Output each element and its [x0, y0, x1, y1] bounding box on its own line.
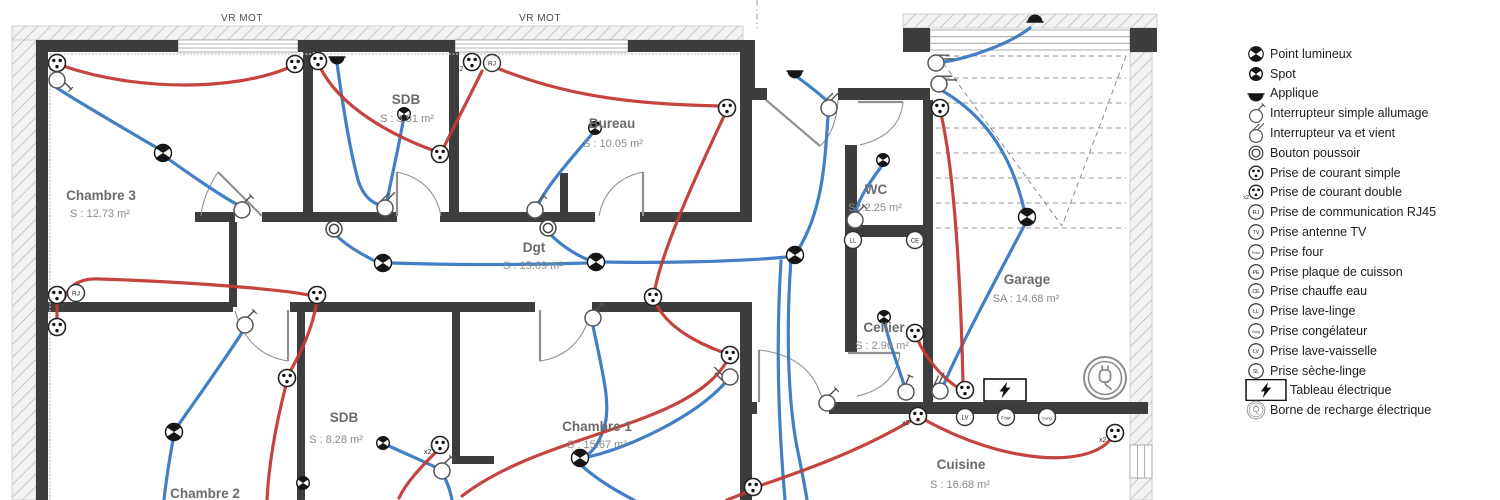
- wall: [838, 88, 930, 100]
- door-swing-arc: [397, 172, 441, 216]
- legend-item-label: Prise de courant double: [1270, 185, 1402, 199]
- int-simple-symbol: [893, 373, 920, 402]
- labels-layer: Chambre 3S : 12.73 m²SDBS : 3.91 m²Burea…: [66, 13, 1060, 500]
- legend-item-lv: LVPrise lave-vaisselle: [1243, 341, 1493, 361]
- svg-text:SL: SL: [1253, 369, 1259, 375]
- pe-icon: PE: [1243, 262, 1269, 282]
- room-area-label: S : 10.05 m²: [583, 138, 643, 150]
- prise-symbol: [932, 100, 949, 117]
- legend-item-applique: Applique: [1243, 84, 1493, 104]
- window-motor-label: VR MOT: [221, 13, 263, 24]
- window: [930, 30, 1130, 50]
- svg-text:TV: TV: [1252, 230, 1259, 236]
- wall: [740, 52, 752, 222]
- prise-x2-symbol: x2: [456, 54, 481, 74]
- blue-wire: [604, 257, 787, 262]
- spot-symbol: [377, 437, 390, 450]
- applique-symbol: [329, 57, 346, 65]
- legend-item-ce: CEPrise chauffe eau: [1243, 282, 1493, 302]
- door-swing-arc: [201, 172, 218, 216]
- wall: [740, 302, 752, 500]
- blue-wire: [778, 261, 785, 500]
- spot-symbol: [877, 154, 890, 167]
- room-label: Garage: [1004, 272, 1051, 287]
- wall: [829, 402, 1148, 414]
- lv-icon: LV: [1243, 341, 1269, 361]
- red-wire: [64, 279, 309, 299]
- prise-icon: [1243, 163, 1269, 183]
- legend-item-label: Prise lave-linge: [1270, 304, 1355, 318]
- svg-text:Cong: Cong: [1252, 330, 1260, 334]
- point-lumineux-symbol: [572, 450, 589, 467]
- exterior-hatch-band: [12, 28, 36, 500]
- bouton-symbol: [326, 221, 342, 237]
- room-label: SDB: [392, 92, 421, 107]
- wall: [903, 28, 930, 52]
- legend-item-point-lumineux: Point lumineux: [1243, 44, 1493, 64]
- tableau-icon: [1243, 379, 1289, 401]
- wall: [592, 302, 740, 312]
- legend-item-label: Prise de courant simple: [1270, 166, 1401, 180]
- room-label: Chambre 2: [170, 486, 240, 500]
- room-area-label: S : 12.73 m²: [70, 208, 130, 220]
- legend-item-label: Prise sèche-linge: [1270, 364, 1366, 378]
- prise-symbol: [49, 287, 66, 304]
- window: [455, 40, 628, 52]
- room-area-label: S : 15.69 m²: [503, 260, 563, 272]
- borne-icon: [1243, 400, 1269, 420]
- room-label: Chambre 3: [66, 188, 136, 203]
- red-wire: [320, 67, 432, 150]
- svg-text:x2: x2: [424, 449, 432, 456]
- sl-icon: SL: [1243, 361, 1269, 381]
- room-label: Dgt: [523, 240, 546, 255]
- prise-symbol: [719, 100, 736, 117]
- legend-item-label: Spot: [1270, 67, 1296, 81]
- svg-text:x2: x2: [1099, 437, 1107, 444]
- legend-item-label: Interrupteur va et vient: [1270, 126, 1395, 140]
- door-swing-arc: [540, 311, 591, 361]
- legend-item-label: Point lumineux: [1270, 47, 1352, 61]
- red-wire: [941, 114, 963, 382]
- blue-wire: [57, 88, 159, 149]
- lv-symbol: LV: [957, 409, 974, 426]
- int-simple-symbol: [237, 309, 257, 333]
- applique-symbol: [787, 71, 804, 79]
- rj45-symbol: RJ: [484, 55, 501, 72]
- int-simple-symbol: [434, 455, 454, 479]
- ce-symbol: CE: [907, 232, 924, 249]
- ll-icon: LL: [1243, 301, 1269, 321]
- point-lumineux-symbol: [787, 247, 804, 264]
- blue-wire: [551, 235, 589, 260]
- stair-diagonal-line: [938, 56, 1062, 226]
- prise-symbol: [287, 56, 304, 73]
- door-swing-arc: [860, 102, 903, 145]
- room-label: SDB: [330, 410, 359, 425]
- electrical-floor-plan-screenshot: x2RJLLCEx2LVFourCongx2RJx2 Chambre 3S : …: [0, 0, 1500, 500]
- spot-icon: [1243, 64, 1269, 84]
- wall: [628, 40, 755, 52]
- prise-symbol: [907, 325, 924, 342]
- legend-item-prise-x2: x2Prise de courant double: [1243, 183, 1493, 203]
- prise-symbol: [309, 287, 326, 304]
- blue-wire: [337, 63, 380, 205]
- legend-item-sl: SLPrise sèche-linge: [1243, 361, 1493, 381]
- rj45-icon: RJ: [1243, 202, 1269, 222]
- ce-icon: CE: [1243, 281, 1269, 301]
- wall: [303, 52, 313, 218]
- prise-symbol: [49, 319, 66, 336]
- prise-symbol: [957, 382, 974, 399]
- window-motor-label: VR MOT: [519, 13, 561, 24]
- legend-item-tv: TVPrise antenne TV: [1243, 222, 1493, 242]
- room-area-label: S : 3.91 m²: [380, 113, 434, 125]
- point-lumineux-symbol: [166, 424, 183, 441]
- exterior-hatch-band: [12, 26, 743, 40]
- blue-wire: [177, 331, 243, 427]
- int-vv-symbol: [377, 192, 395, 216]
- ll-symbol: LL: [845, 232, 862, 249]
- legend-item-int-vv: Interrupteur va et vient: [1243, 123, 1493, 143]
- room-area-label: SA : 14.68 m²: [993, 293, 1060, 305]
- legend-item-label: Tableau électrique: [1290, 383, 1391, 397]
- svg-text:LV: LV: [1253, 349, 1259, 355]
- int-vv-symbol: [714, 367, 738, 385]
- svg-text:RJ: RJ: [488, 60, 496, 67]
- svg-text:x2: x2: [1243, 196, 1249, 202]
- wall: [297, 307, 305, 500]
- svg-text:Cong: Cong: [1042, 415, 1052, 420]
- legend-item-label: Interrupteur simple allumage: [1270, 106, 1428, 120]
- tableau-symbol: [984, 379, 1026, 401]
- four-icon: Four: [1243, 242, 1269, 262]
- legend-item-label: Prise congélateur: [1270, 324, 1367, 338]
- wall: [36, 40, 48, 500]
- legend-item-rj45: RJPrise de communication RJ45: [1243, 202, 1493, 222]
- room-area-label: S : 2.25 m²: [848, 202, 902, 214]
- legend-item-label: Bouton poussoir: [1270, 146, 1360, 160]
- blue-wire: [796, 76, 826, 100]
- room-label: Cellier: [863, 320, 905, 335]
- wall: [845, 237, 857, 352]
- door-leaf: [766, 100, 820, 146]
- room-label: Chambre 1: [562, 419, 632, 434]
- legend-item-prise: Prise de courant simple: [1243, 163, 1493, 183]
- point-lumineux-symbol: [588, 254, 605, 271]
- wall: [1130, 28, 1157, 52]
- cong-icon: Cong: [1243, 321, 1269, 341]
- prise-symbol: [645, 289, 662, 306]
- borne-symbol: [1084, 357, 1126, 399]
- legend-item-cong: CongPrise congélateur: [1243, 321, 1493, 341]
- svg-text:LV: LV: [962, 415, 969, 421]
- legend-item-label: Borne de recharge électrique: [1270, 403, 1431, 417]
- room-area-label: S : 8.28 m²: [309, 434, 363, 446]
- legend-panel: Point lumineuxSpotAppliqueInterrupteur s…: [1243, 44, 1493, 420]
- int-vv-icon: [1243, 123, 1269, 143]
- blue-wire: [337, 236, 375, 261]
- legend-item-borne: Borne de recharge électrique: [1243, 400, 1493, 420]
- prise-symbol: [745, 479, 762, 496]
- legend-item-label: Prise plaque de cuisson: [1270, 265, 1403, 279]
- prise-x2-symbol: x2: [1099, 425, 1124, 445]
- blue-wire: [582, 466, 634, 500]
- legend-item-label: Prise de communication RJ45: [1270, 205, 1436, 219]
- svg-text:LL: LL: [850, 238, 857, 244]
- prise-x2-icon: x2: [1243, 182, 1269, 202]
- legend-item-ll: LLPrise lave-linge: [1243, 301, 1493, 321]
- blue-wire: [798, 116, 828, 250]
- point-lumineux-icon: [1243, 44, 1269, 64]
- applique-icon: [1243, 84, 1269, 104]
- wall: [36, 40, 178, 52]
- svg-text:LL: LL: [1253, 309, 1259, 315]
- wall: [452, 307, 460, 463]
- legend-item-label: Prise antenne TV: [1270, 225, 1366, 239]
- prise-symbol: [49, 55, 66, 72]
- red-wire: [267, 385, 286, 500]
- room-area-label: S : 2.96 m²: [855, 340, 909, 352]
- window: [1130, 445, 1152, 478]
- wall: [298, 40, 455, 52]
- four-symbol: Four: [998, 409, 1015, 426]
- door-swing-arc: [857, 353, 900, 396]
- wall: [640, 212, 740, 222]
- legend-item-int-simple: Interrupteur simple allumage: [1243, 103, 1493, 123]
- wall: [452, 456, 494, 464]
- point-lumineux-symbol: [375, 255, 392, 272]
- red-wire: [925, 420, 1110, 458]
- tv-icon: TV: [1243, 222, 1269, 242]
- blue-wire: [788, 259, 807, 500]
- prise-symbol: [310, 53, 327, 70]
- legend-item-label: Prise lave-vaisselle: [1270, 344, 1377, 358]
- svg-text:PE: PE: [1253, 270, 1260, 276]
- bouton-symbol: [540, 220, 556, 236]
- int-simple-icon: [1243, 103, 1269, 123]
- door-swing-arc: [599, 172, 643, 216]
- room-area-label: S : 15.67 m²: [567, 439, 627, 451]
- svg-text:Four: Four: [1252, 250, 1261, 255]
- svg-text:CE: CE: [911, 238, 919, 244]
- prise-symbol: [279, 370, 296, 387]
- wall: [440, 212, 595, 222]
- legend-item-pe: PEPrise plaque de cuisson: [1243, 262, 1493, 282]
- wall: [740, 402, 757, 414]
- room-area-label: S : 16.68 m²: [930, 479, 990, 491]
- stair-diagonal-line: [1062, 56, 1126, 226]
- legend-item-spot: Spot: [1243, 64, 1493, 84]
- point-lumineux-symbol: [1019, 209, 1036, 226]
- svg-text:x2: x2: [456, 66, 464, 73]
- point-lumineux-symbol: [155, 145, 172, 162]
- legend-item-label: Prise chauffe eau: [1270, 284, 1367, 298]
- svg-text:RJ: RJ: [72, 290, 80, 297]
- exterior-hatch-band: [1130, 52, 1152, 500]
- prise-symbol: [432, 146, 449, 163]
- wall: [262, 212, 397, 222]
- svg-text:Four: Four: [1001, 415, 1011, 420]
- wall: [48, 302, 233, 312]
- room-label: Cuisine: [937, 457, 986, 472]
- room-label: WC: [865, 182, 888, 197]
- legend-item-label: Applique: [1270, 86, 1319, 100]
- spot-symbol: [297, 477, 310, 490]
- rj45-symbol: RJ: [68, 285, 85, 302]
- blue-wire: [445, 478, 452, 500]
- bouton-icon: [1243, 143, 1269, 163]
- svg-text:x2: x2: [902, 420, 910, 427]
- svg-text:RJ: RJ: [1253, 210, 1260, 216]
- prise-x2-symbol: x2: [424, 437, 449, 457]
- red-wire: [63, 66, 288, 85]
- red-wire: [497, 68, 719, 106]
- room-label: Bureau: [589, 116, 636, 131]
- legend-item-four: FourPrise four: [1243, 242, 1493, 262]
- wall: [290, 302, 535, 312]
- cong-symbol: Cong: [1039, 409, 1056, 426]
- legend-item-bouton: Bouton poussoir: [1243, 143, 1493, 163]
- wall: [229, 222, 237, 307]
- legend-item-label: Prise four: [1270, 245, 1324, 259]
- window: [178, 40, 298, 52]
- prise-symbol: [722, 347, 739, 364]
- legend-item-tableau: Tableau électrique: [1243, 381, 1493, 401]
- svg-text:CE: CE: [1252, 290, 1260, 296]
